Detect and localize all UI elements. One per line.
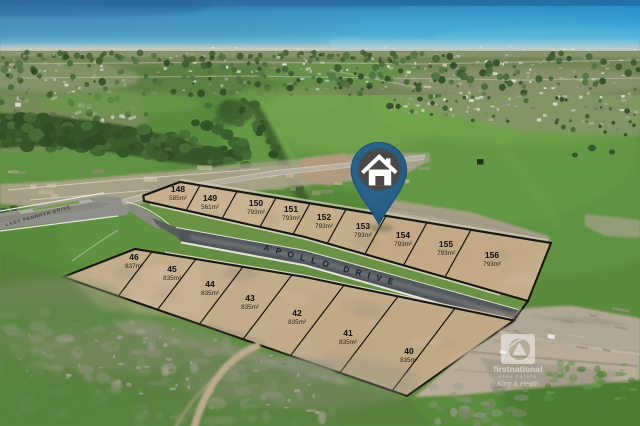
svg-text:149: 149 <box>203 193 217 203</box>
svg-text:835m²: 835m² <box>400 357 418 364</box>
svg-text:REAL ESTATE: REAL ESTATE <box>499 375 538 379</box>
svg-text:835m²: 835m² <box>339 339 357 346</box>
svg-text:793m²: 793m² <box>247 209 265 216</box>
svg-text:40: 40 <box>404 346 414 356</box>
svg-text:151: 151 <box>284 204 298 214</box>
svg-text:793m²: 793m² <box>394 241 412 248</box>
svg-text:585m²: 585m² <box>169 195 187 202</box>
svg-text:793m²: 793m² <box>354 232 372 239</box>
svg-text:793m²: 793m² <box>315 223 333 230</box>
svg-text:41: 41 <box>343 328 353 338</box>
svg-text:561m²: 561m² <box>201 204 219 211</box>
svg-text:152: 152 <box>317 212 331 222</box>
svg-text:150: 150 <box>249 198 263 208</box>
svg-text:835m²: 835m² <box>241 304 259 311</box>
svg-text:793m²: 793m² <box>483 261 501 268</box>
svg-text:firstnational: firstnational <box>493 364 542 374</box>
svg-text:King & Heath: King & Heath <box>497 381 538 388</box>
svg-text:156: 156 <box>485 250 499 260</box>
svg-text:835m²: 835m² <box>288 319 306 326</box>
svg-text:153: 153 <box>356 221 370 231</box>
svg-text:46: 46 <box>129 252 139 262</box>
svg-text:155: 155 <box>439 239 453 249</box>
svg-text:154: 154 <box>396 230 410 240</box>
svg-text:42: 42 <box>292 308 302 318</box>
svg-text:43: 43 <box>245 293 255 303</box>
svg-text:793m²: 793m² <box>282 215 300 222</box>
svg-text:793m²: 793m² <box>437 250 455 257</box>
svg-text:44: 44 <box>205 279 215 289</box>
svg-text:835m²: 835m² <box>163 275 181 282</box>
svg-text:835m²: 835m² <box>201 290 219 297</box>
svg-text:45: 45 <box>167 264 177 274</box>
svg-text:837m²: 837m² <box>125 263 143 270</box>
